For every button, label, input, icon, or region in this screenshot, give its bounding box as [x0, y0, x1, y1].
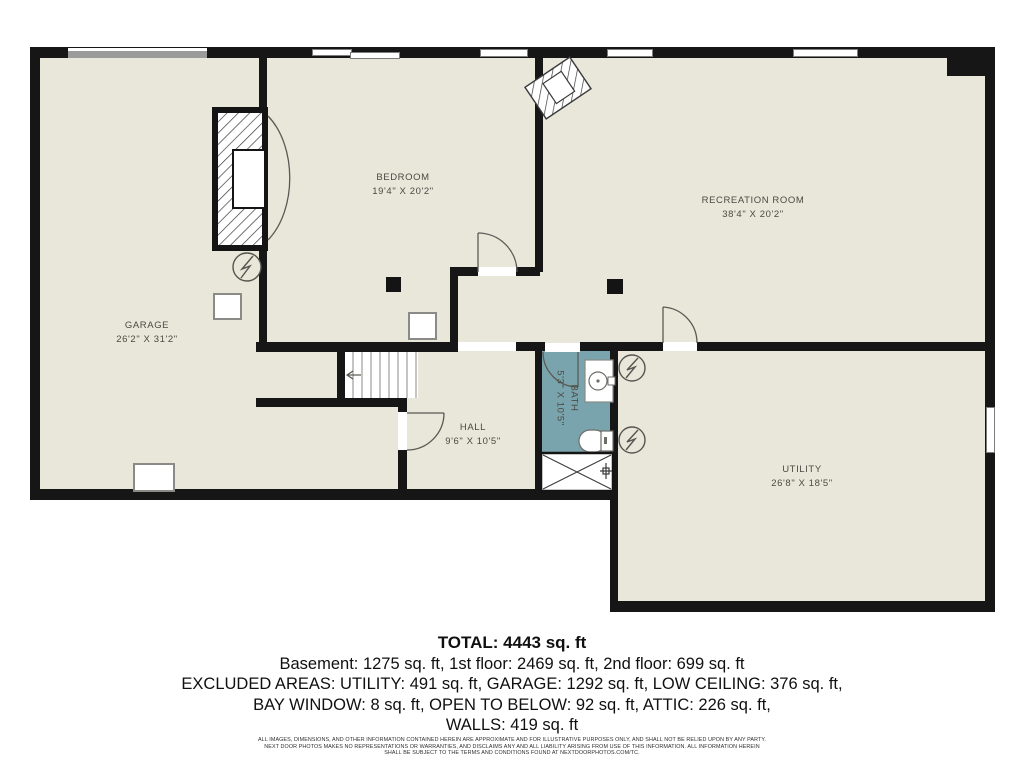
floor-areas-text: Basement: 1275 sq. ft, 1st floor: 2469 s… [0, 654, 1024, 675]
bedroom-window-left [312, 49, 352, 56]
bedroom-name: BEDROOM [323, 171, 483, 185]
hall-name: HALL [413, 421, 533, 435]
hall-garage-wall-upper [398, 398, 407, 412]
recreation-room-name: RECREATION ROOM [673, 194, 833, 208]
recreation-window-left [607, 49, 653, 57]
total-area-text: TOTAL: 4443 sq. ft [0, 633, 1024, 654]
bath-dims: 5'3" X 10'5" [554, 343, 568, 453]
exterior-right-wall [985, 47, 995, 612]
utility-door-threshold [663, 342, 697, 351]
disclaimer-line1: ALL IMAGES, DIMENSIONS, AND OTHER INFORM… [0, 737, 1024, 744]
excluded-areas-text-line1: EXCLUDED AREAS: UTILITY: 491 sq. ft, GAR… [0, 674, 1024, 695]
passage-hall-opening [458, 342, 516, 351]
bedroom-window-mid [350, 52, 400, 59]
understair-alcove-floor [262, 352, 345, 398]
stairs-alcove-divider-wall [337, 352, 345, 398]
utility-dims: 26'8" X 18'5" [722, 477, 882, 491]
bedroom-door-wall-vertical [450, 267, 458, 352]
area-summary: TOTAL: 4443 sq. ft Basement: 1275 sq. ft… [0, 633, 1024, 736]
garage-floor-extension [262, 405, 402, 492]
disclaimer: ALL IMAGES, DIMENSIONS, AND OTHER INFORM… [0, 737, 1024, 757]
bedroom-window-right [480, 49, 528, 57]
passage-floor [450, 268, 540, 352]
disclaimer-line3: SHALL BE SUBJECT TO THE TERMS AND CONDIT… [0, 750, 1024, 757]
garage-name: GARAGE [67, 319, 227, 333]
recreation-support-post [607, 279, 623, 294]
mid-wall-segment-c [697, 342, 990, 351]
garage-bottom-fixture-box [133, 463, 175, 492]
recreation-room-dims: 38'4" X 20'2" [673, 208, 833, 222]
bath-left-wall [535, 350, 542, 492]
garage-door [68, 48, 207, 58]
utility-bottom-wall [610, 601, 995, 612]
exterior-bottom-wall-left [30, 489, 617, 500]
recreation-window-right [793, 49, 858, 57]
hall-door-threshold [398, 412, 407, 450]
utility-name: UTILITY [722, 463, 882, 477]
garage-dims: 26'2" X 31'2" [67, 333, 227, 347]
bedroom-dims: 19'4" X 20'2" [323, 185, 483, 199]
bedroom-label: BEDROOM 19'4" X 20'2" [323, 171, 483, 198]
bedroom-support-post [386, 277, 401, 292]
walls-area-text: WALLS: 419 sq. ft [0, 715, 1024, 736]
mid-wall-segment-b [580, 342, 663, 351]
hall-garage-wall-lower [398, 450, 407, 492]
recreation-room-label: RECREATION ROOM 38'4" X 20'2" [673, 194, 833, 221]
corner-chimney-block [947, 47, 995, 76]
excluded-areas-text-line2: BAY WINDOW: 8 sq. ft, OPEN TO BELOW: 92 … [0, 695, 1024, 716]
garage-fixture-box [213, 293, 242, 320]
bedroom-fixture-box [408, 312, 437, 340]
floor-plan-page: GARAGE 26'2" X 31'2" BEDROOM 19'4" X 20'… [0, 0, 1024, 768]
hall-dims: 9'6" X 10'5" [413, 435, 533, 449]
bath-label: BATH 5'3" X 10'5" [554, 343, 581, 453]
bedroom-recreation-divider-wall [535, 55, 543, 272]
garage-bedroom-wall-lower [259, 248, 267, 345]
garage-bedroom-wall-upper [259, 55, 267, 111]
hall-label: HALL 9'6" X 10'5" [413, 421, 533, 448]
shower [541, 453, 613, 491]
utility-left-wall [610, 345, 618, 607]
disclaimer-line2: NEXT DOOR PHOTOS MAKES NO REPRESENTATION… [0, 744, 1024, 751]
garage-label: GARAGE 26'2" X 31'2" [67, 319, 227, 346]
garage-floor [36, 55, 262, 492]
utility-label: UTILITY 26'8" X 18'5" [722, 463, 882, 490]
exterior-left-wall [30, 47, 40, 500]
staircase [345, 352, 418, 398]
stairs-bottom-wall [256, 398, 402, 407]
bath-name: BATH [567, 343, 581, 453]
bedroom-bottom-wall [256, 342, 458, 352]
utility-window [986, 407, 995, 453]
bedroom-door-threshold [478, 267, 516, 276]
